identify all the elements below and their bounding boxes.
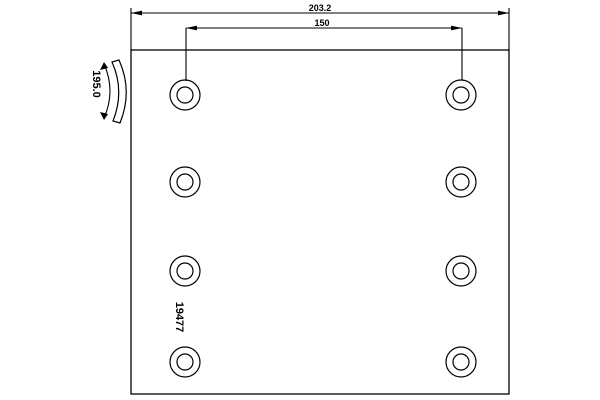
hole-outer-circle (446, 347, 476, 377)
hole-outer-circle (446, 167, 476, 197)
hole-outer-circle (170, 167, 200, 197)
hole-inner-circle (453, 263, 469, 279)
hole-inner-circle (177, 263, 193, 279)
arc-arrowhead-bottom-icon (100, 112, 108, 120)
hole-inner-circle (177, 174, 193, 190)
part-outline-rect (131, 50, 509, 394)
overall-width-label: 203.2 (309, 3, 332, 13)
arrowhead-right-icon (451, 26, 462, 31)
hole-inner-circle (453, 87, 469, 103)
holes-group (170, 80, 476, 377)
hole-inner-circle (453, 354, 469, 370)
hole-outer-circle (446, 256, 476, 286)
hole-outer-circle (170, 256, 200, 286)
arrowhead-left-icon (186, 26, 197, 31)
curved-lining-section (112, 60, 126, 123)
arrowhead-left-icon (131, 11, 142, 16)
hole-inner-circle (177, 87, 193, 103)
part-number-label: 19477 (173, 302, 185, 333)
technical-drawing-page: 203.2 150 195.0 19477 (0, 0, 600, 400)
hole-inner-circle (177, 354, 193, 370)
hole-inner-circle (453, 174, 469, 190)
hole-outer-circle (170, 347, 200, 377)
hole-outer-circle (170, 80, 200, 110)
arrowhead-right-icon (498, 11, 509, 16)
drawing-svg: 203.2 150 195.0 19477 (0, 0, 600, 400)
curve-dimension-arc (104, 64, 110, 118)
curve-width-label: 195.0 (90, 70, 102, 98)
hole-spacing-label: 150 (314, 18, 329, 28)
arc-arrowhead-top-icon (100, 62, 108, 70)
hole-outer-circle (446, 80, 476, 110)
